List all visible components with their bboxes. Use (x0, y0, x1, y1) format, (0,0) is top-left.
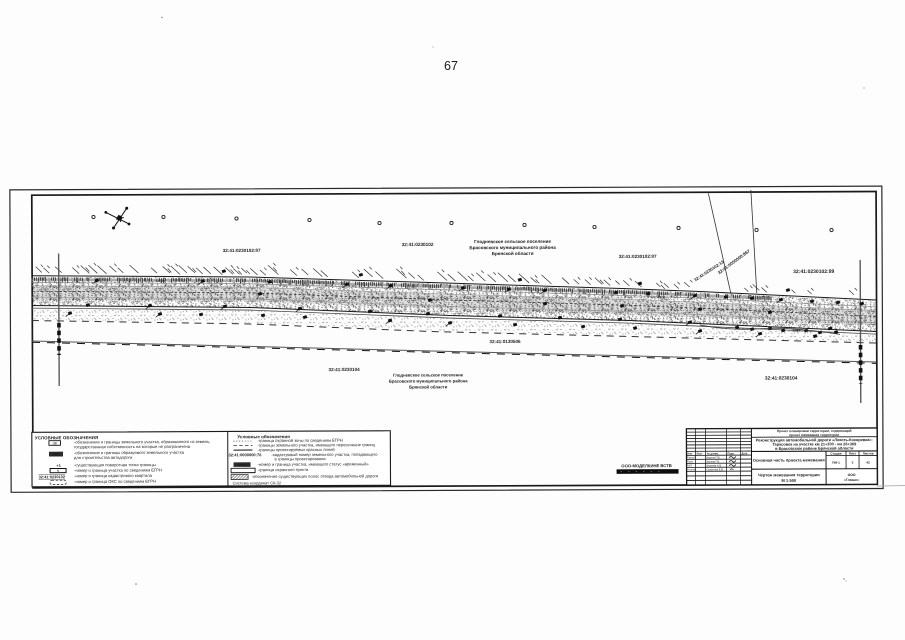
svg-text:32:41:0230102:87: 32:41:0230102:87 (223, 248, 261, 253)
svg-text:Смирнова Е.В.: Смирнова Е.В. (706, 468, 724, 471)
svg-text:Брянской области: Брянской области (409, 384, 448, 389)
svg-text:32:41:0000000:76: 32:41:0000000:76 (228, 452, 262, 457)
svg-text:Лист: Лист (696, 452, 703, 455)
svg-text:Чертеж межевания территории: Чертеж межевания территории (758, 472, 820, 477)
svg-text:Иванова А.В.: Иванова А.В. (706, 464, 722, 467)
svg-text:-граница охранного пункта: -граница охранного пункта (258, 467, 309, 472)
svg-text:32:41:0230104: 32:41:0230104 (765, 375, 798, 381)
svg-text:Листов: Листов (863, 451, 874, 455)
svg-text:-номер и граница участка, имею: -номер и граница участка, имеющего стату… (258, 461, 370, 466)
svg-text:Иванов Г.В.: Иванов Г.В. (706, 460, 720, 463)
svg-text::38: :38 (52, 441, 57, 445)
svg-text:ГИП: ГИП (687, 465, 692, 468)
svg-text:Основная часть проекта межеван: Основная часть проекта межевания (753, 457, 826, 462)
svg-text:Брасовского муниципального рай: Брасовского муниципального района (389, 378, 468, 383)
svg-text:32:41:0230104: 32:41:0230104 (329, 367, 361, 372)
svg-text:М 1:500: М 1:500 (781, 478, 796, 483)
svg-text::3282(2): :3282(2) (237, 463, 248, 467)
svg-text::3282: :3282 (791, 328, 800, 332)
svg-text:Стадия: Стадия (830, 452, 841, 456)
svg-text:ПМ-1: ПМ-1 (832, 461, 840, 465)
svg-text:3: 3 (852, 461, 854, 465)
svg-text:ООО-МОДЕЛКИНЕ ВСТВ: ООО-МОДЕЛКИНЕ ВСТВ (621, 463, 672, 468)
svg-text:Подп.: Подп. (727, 452, 734, 455)
svg-text:Брянской области: Брянской области (492, 250, 534, 256)
svg-text:государственная собственность: государственная собственность на которые… (74, 444, 191, 450)
svg-text:в границы проектирования: в границы проектирования (275, 456, 326, 461)
svg-text:для строительства автодороги: для строительства автодороги (74, 455, 132, 460)
svg-text:ООО: ООО (848, 473, 856, 477)
svg-text:-обозначение существующих поло: -обозначение существующих полос отвода а… (252, 473, 379, 479)
svg-text:Лист: Лист (849, 452, 857, 456)
svg-text:Н.контр.: Н.контр. (687, 469, 697, 472)
svg-text:Брасовского муниципального рай: Брасовского муниципального района (469, 244, 556, 250)
svg-text:-8 Р.Зн: -8 Р.Зн (155, 279, 165, 283)
svg-text:32:41:0230102: 32:41:0230102 (39, 474, 66, 479)
svg-text:67: 67 (444, 59, 458, 73)
svg-text:32:41:0130506: 32:41:0130506 (489, 339, 521, 344)
svg-text:Разраб.: Разраб. (687, 457, 696, 460)
svg-text:Система координат СК-32: Система координат СК-32 (233, 480, 282, 485)
svg-text:-номер и граница ОКС по сведен: -номер и граница ОКС по сведениям ЕГРН (74, 479, 156, 484)
svg-text:32:41:0230102:87: 32:41:0230102:87 (619, 254, 657, 259)
svg-text:«Глеанс»: «Глеанс» (844, 478, 859, 482)
svg-text:32:41:0230102:89: 32:41:0230102:89 (793, 269, 834, 275)
svg-text:32:41:0230102: 32:41:0230102 (402, 242, 434, 247)
svg-text:Дата: Дата (741, 452, 747, 455)
svg-text::49(3): :49(3) (656, 295, 665, 299)
svg-text:Глодневское сельское поселение: Глодневское сельское поселение (393, 372, 464, 377)
svg-text:+1: +1 (57, 464, 61, 468)
svg-text:-номер и граница кадастрового: -номер и граница кадастрового квартала (74, 473, 153, 478)
svg-text:№ докум.: № докум. (707, 452, 719, 455)
svg-text::3282: :3282 (52, 452, 60, 456)
svg-text:Глодневское сельское поселение: Глодневское сельское поселение (474, 239, 551, 244)
svg-text:в Брасовском районе Брянской о: в Брасовском районе Брянской области (775, 446, 854, 451)
svg-text:Иванов П.Б.: Иванов П.Б. (706, 456, 720, 459)
svg-text:Пров.: Пров. (687, 461, 694, 464)
svg-text:Изм: Изм (687, 453, 692, 456)
svg-text:42: 42 (866, 460, 870, 464)
